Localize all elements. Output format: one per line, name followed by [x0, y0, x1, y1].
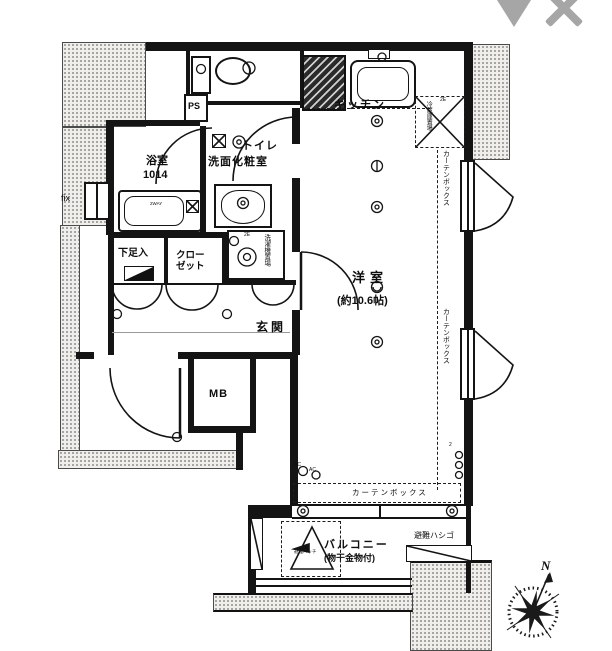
closet-front-line: [108, 283, 296, 285]
washroom-label: 洗面化粧室: [208, 156, 268, 169]
bath-label: 浴室: [146, 155, 168, 168]
wall-toilet-left: [186, 48, 190, 98]
wall-mb-right: [250, 359, 256, 433]
wall-hall-left: [108, 232, 114, 355]
ac-label-1: AC: [294, 462, 301, 468]
outlet-symbol: [456, 462, 463, 469]
wall-washroom-right-b: [292, 178, 300, 252]
wall-right-upper: [464, 42, 473, 162]
fitting-symbol: [372, 116, 383, 127]
fridge-space-box: [415, 96, 465, 148]
toilet-counter: [191, 56, 211, 94]
wall-hall-right: [292, 310, 300, 355]
fitting-symbol: [372, 202, 383, 213]
evac-hatch-label: 避難ハッチ: [294, 549, 317, 554]
entrance-label: 玄関: [256, 320, 286, 334]
evac-ladder-label: 避難ハシゴ: [414, 531, 454, 541]
wall-entry-jamb-left: [76, 352, 94, 359]
compass-north-arrow: [533, 574, 549, 612]
wall-entry-jamb-right: [178, 352, 190, 359]
wall-top: [146, 42, 473, 51]
balcony-edge-inner: [248, 585, 412, 587]
compass-cross-line: [507, 594, 559, 630]
curtain-box-dashed-line: [437, 150, 438, 490]
ac-label-2: AC: [309, 467, 316, 473]
dropdown-icon[interactable]: [497, 0, 531, 27]
stipple-left-band: [60, 225, 80, 452]
stipple-bottom-band: [213, 593, 413, 612]
toilet-bowl: [215, 57, 251, 85]
main-room-label: 洋室: [352, 270, 388, 286]
window-2-swing-arc: [475, 331, 513, 399]
bathtub-faucet-box: [186, 200, 199, 213]
wall-right-lower: [464, 400, 473, 506]
folding-door-arc-3: [252, 284, 294, 305]
washroom-vent-box: [212, 134, 226, 148]
kitchen-faucet-base: [368, 49, 390, 59]
closet-label: クロー ゼット: [176, 250, 205, 273]
main-room-size-label: (約10.6帖): [337, 295, 388, 308]
fitting-symbol: [372, 161, 383, 172]
floorplan-canvas: PS fix トイレ キッチン 冷蔵庫置場 2E 浴室 1014 2WAY 洗面…: [0, 0, 612, 651]
fridge-space-label: 冷蔵庫置場: [424, 101, 431, 143]
toilet-label: トイレ: [242, 140, 278, 153]
curtain-box-label-1: カーテンボックス: [441, 150, 449, 232]
outlet-symbol: [456, 472, 463, 479]
ps-label: PS: [188, 101, 200, 112]
compass-star: [511, 590, 554, 633]
entrance-door-knob: [173, 433, 182, 442]
door-knob: [223, 310, 232, 319]
wall-corridor-stub: [236, 426, 243, 470]
window-right-2-sash: [467, 330, 469, 398]
bathtub-note: 2WAY: [150, 201, 162, 206]
stipple-bottom-right-block: [410, 560, 492, 651]
shutter-symbol: [447, 506, 458, 517]
north-label: N: [541, 558, 550, 574]
window-right-1-sash: [467, 162, 469, 230]
compass-cross-line: [515, 586, 551, 638]
entrance-door-arc: [110, 368, 180, 438]
balcony-edge-outer: [248, 578, 412, 580]
wall-mb-bottom: [188, 426, 256, 433]
stipple-top-right: [472, 44, 510, 160]
shoe-slope-triangle: [125, 267, 153, 280]
window-1-swing-arc: [475, 163, 513, 231]
curtain-box-label-2: カーテンボックス: [441, 308, 449, 390]
balcony-window-rail-top: [292, 504, 470, 506]
curtain-box-label-3: カーテンボックス: [352, 488, 428, 497]
shutter-symbol: [298, 506, 309, 517]
wall-shoe-closet: [164, 238, 168, 284]
close-icon[interactable]: [540, 0, 588, 38]
washing-machine-box: [227, 230, 285, 280]
compass: [507, 572, 559, 638]
folding-door-arc-2: [166, 284, 218, 310]
fix-window-label: fix: [61, 193, 70, 204]
washbasin-bowl: [221, 190, 265, 224]
laundry-outlet-label: 2E: [244, 232, 250, 238]
kitchen-sink-basin: [357, 67, 409, 101]
outlet-count-label: 2: [449, 442, 452, 448]
fitting-symbol: [372, 337, 383, 348]
balcony-window-meeting-stile: [379, 504, 381, 519]
bath-size-label: 1014: [143, 169, 167, 182]
stipple-top-left: [62, 42, 146, 127]
shoe-box-label: 下足入: [118, 248, 148, 260]
wall-hall-bottom: [186, 352, 296, 359]
evac-ladder-box: [406, 545, 472, 562]
fix-window-mullion: [96, 184, 98, 218]
fridge-outlet-label: 2E: [440, 97, 446, 103]
stipple-corridor-band: [58, 450, 242, 469]
kitchen-label: キッチン: [334, 99, 386, 112]
wall-washroom-right-a: [292, 108, 300, 144]
compass-dotted-ring: [509, 588, 557, 636]
wall-mb-left: [188, 359, 194, 433]
balcony-window-rail-bottom: [292, 517, 470, 519]
meter-box-label: MB: [209, 388, 228, 401]
balcony-partition: [250, 518, 263, 570]
compass-arrow-head: [544, 572, 553, 583]
washroom-light-inner: [237, 140, 241, 144]
laundry-space-label: 洗濯機置場: [262, 234, 270, 280]
outlet-symbol: [456, 452, 463, 459]
folding-door-arc-1: [112, 284, 162, 309]
wall-right-mid: [464, 232, 473, 328]
